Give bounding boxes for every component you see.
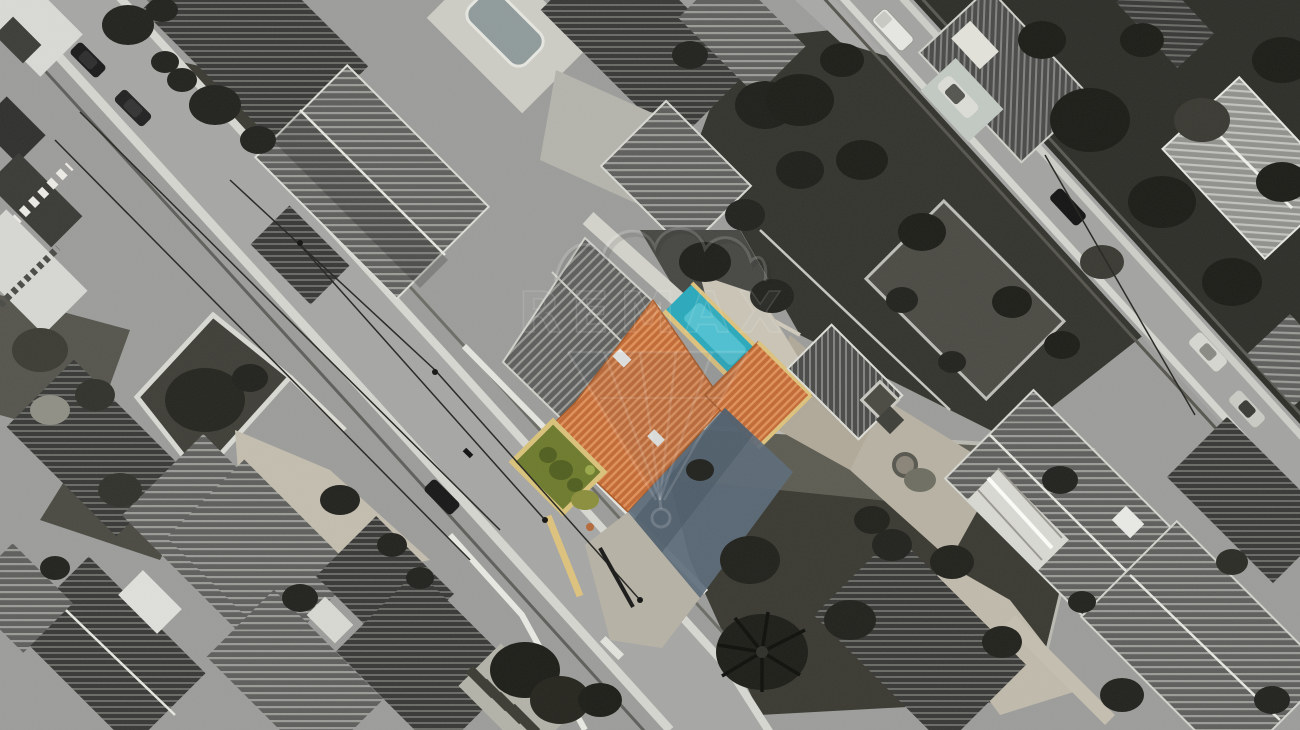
aerial-photo: REMAX	[0, 0, 1300, 730]
film-grain	[0, 0, 1300, 730]
